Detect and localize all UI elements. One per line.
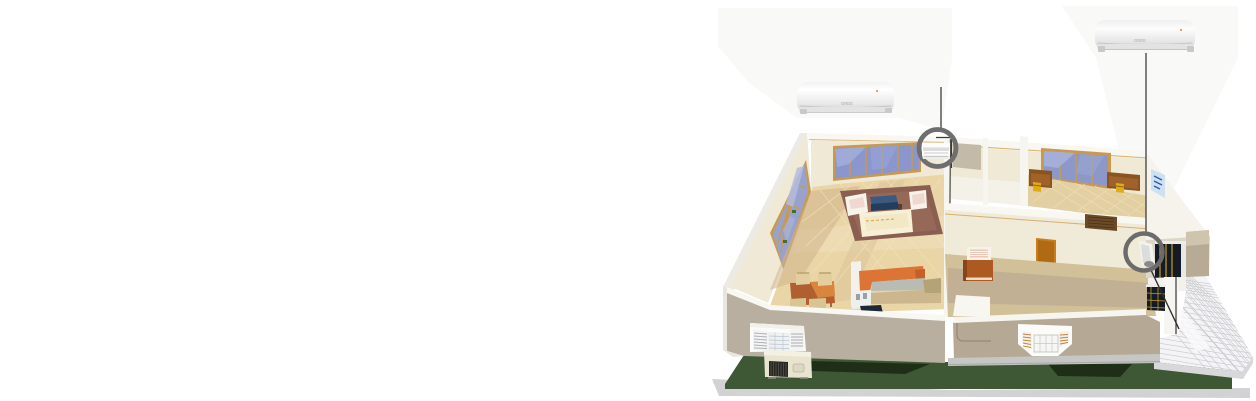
svg-text:GREE: GREE [1134, 38, 1146, 43]
svg-text:GREE: GREE [841, 101, 853, 106]
